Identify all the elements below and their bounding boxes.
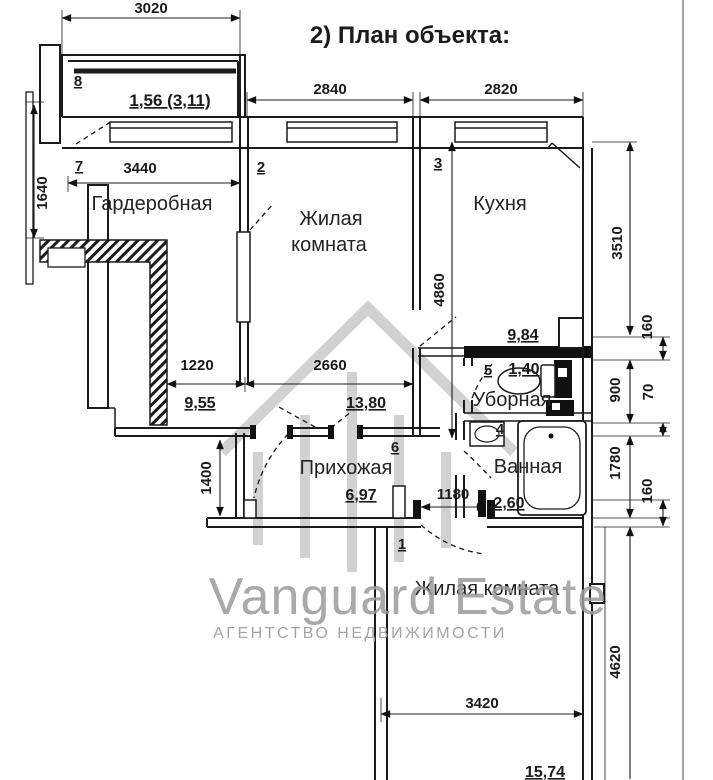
- dimension-label: 1220: [180, 357, 213, 374]
- room-area-1: 15,74: [525, 764, 565, 780]
- dimension-label: 4860: [431, 273, 448, 306]
- room-name-3: Кухня: [473, 193, 527, 215]
- room-area-5: 1,40: [508, 361, 539, 378]
- bathroom-fixtures: [470, 360, 586, 515]
- room-number-6: 6: [391, 439, 399, 456]
- room-area-4: 2,60: [493, 495, 524, 512]
- floor-plan-drawing: 2) План объекта: 3020 2840 2820 1640 8 1…: [0, 0, 713, 780]
- room-area-6: 6,97: [345, 487, 376, 504]
- room-area-2: 13,80: [346, 395, 386, 412]
- room-name-4: Ванная: [494, 456, 563, 478]
- dimension-label: 1400: [198, 461, 215, 494]
- room-number-8: 8: [74, 73, 82, 90]
- dimension-label: 2840: [313, 81, 346, 98]
- floor-plan-page: 2) План объекта: 3020 2840 2820 1640 8 1…: [0, 0, 713, 780]
- room-number-7: 7: [75, 158, 83, 175]
- room-number-5: 5: [484, 362, 492, 379]
- room-name-6: Прихожая: [300, 457, 393, 479]
- walls: [26, 45, 604, 780]
- dimension-label: 70: [640, 384, 657, 401]
- room-name-7: Гардеробная: [92, 193, 213, 215]
- room-number-4: 4: [496, 421, 505, 438]
- watermark-tagline: АГЕНТСТВО НЕДВИЖИМОСТИ: [213, 625, 507, 642]
- dimension-label: 160: [639, 478, 656, 503]
- dimension-label: 1780: [607, 446, 624, 479]
- room-area-8: 1,56 (3,11): [129, 91, 210, 110]
- room-name-2-line1: Жилая: [299, 208, 362, 230]
- room-name-5: Уборная: [473, 389, 552, 411]
- dimension-label: 3420: [465, 695, 498, 712]
- watermark-brand: Vanguard Estate: [209, 568, 608, 626]
- windows: [110, 122, 547, 142]
- room-name-2-line2: комната: [291, 234, 368, 256]
- room-number-1: 1: [398, 536, 406, 553]
- dimension-label: 900: [607, 377, 624, 402]
- dimension-label: 2820: [484, 81, 517, 98]
- door-swings: [76, 121, 492, 554]
- room-number-2: 2: [257, 159, 265, 176]
- dimension-label: 160: [639, 314, 656, 339]
- dimension-label: 4620: [607, 645, 624, 678]
- dimension-label: 3510: [609, 226, 626, 259]
- page-title: 2) План объекта:: [310, 22, 510, 49]
- dimension-label: 1180: [437, 486, 470, 503]
- dimension-label: 1640: [34, 176, 51, 209]
- dimension-label: 3020: [134, 0, 167, 17]
- room-number-3: 3: [434, 155, 442, 172]
- dimension-label: 2660: [313, 357, 346, 374]
- room-area-3: 9,84: [507, 327, 538, 344]
- dimension-label: 3440: [123, 160, 156, 177]
- room-area-7: 9,55: [184, 395, 215, 412]
